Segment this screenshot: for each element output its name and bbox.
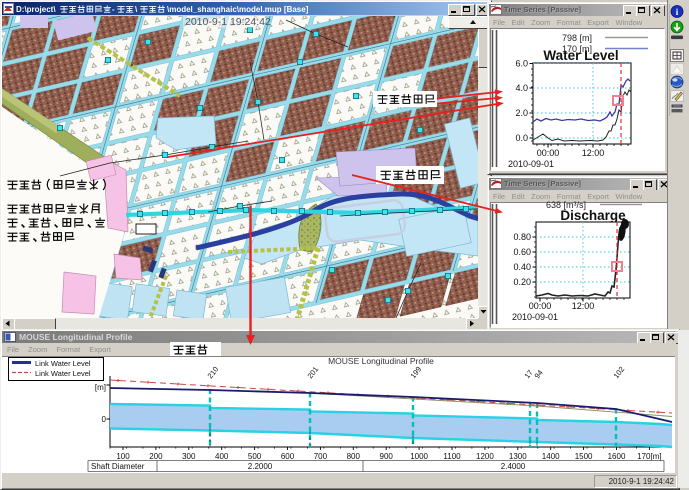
svg-text:0.60: 0.60 [513, 247, 531, 257]
svg-text:1000: 1000 [410, 452, 428, 461]
svg-text:100: 100 [116, 452, 130, 461]
svg-text:0.40: 0.40 [513, 262, 531, 272]
svg-text:Discharge: Discharge [560, 208, 626, 223]
svg-text:2010-9-1 19:24:42: 2010-9-1 19:24:42 [185, 16, 271, 28]
svg-text:600: 600 [281, 452, 295, 461]
svg-text:300: 300 [182, 452, 196, 461]
svg-text:-: - [112, 5, 115, 14]
svg-text:00:00: 00:00 [529, 301, 552, 311]
svg-text:\model_shanghaic\model.mup [Ba: \model_shanghaic\model.mup [Base] [167, 5, 309, 14]
svg-text:798 [m]: 798 [m] [562, 33, 592, 43]
svg-text:200: 200 [149, 452, 163, 461]
svg-text:00:00: 00:00 [537, 148, 560, 158]
svg-text:12:00: 12:00 [572, 301, 595, 311]
svg-text:800: 800 [347, 452, 361, 461]
svg-text:1400: 1400 [542, 452, 560, 461]
svg-text:0.20: 0.20 [513, 277, 531, 287]
svg-text:700: 700 [314, 452, 328, 461]
svg-text:1300: 1300 [509, 452, 527, 461]
svg-text:Water Level: Water Level [543, 48, 618, 63]
svg-text:1200: 1200 [476, 452, 494, 461]
svg-text:6.0: 6.0 [515, 59, 528, 69]
svg-text:2.4000: 2.4000 [501, 462, 526, 471]
svg-text:2010-09-01: 2010-09-01 [508, 159, 554, 169]
svg-text:400: 400 [215, 452, 229, 461]
svg-text:210: 210 [205, 365, 220, 380]
svg-text:[m]: [m] [95, 383, 106, 392]
svg-text:0: 0 [102, 415, 107, 424]
svg-text:0.0: 0.0 [515, 133, 528, 143]
svg-text:MOUSE Longitudinal Profile: MOUSE Longitudinal Profile [328, 356, 434, 366]
svg-text:D:\project\: D:\project\ [16, 5, 56, 14]
svg-text:Shaft Diameter: Shaft Diameter [91, 462, 145, 471]
svg-text:0.80: 0.80 [513, 232, 531, 242]
svg-text:1600: 1600 [608, 452, 626, 461]
svg-text:900: 900 [380, 452, 394, 461]
svg-text:1500: 1500 [575, 452, 593, 461]
svg-text:Link Water Level: Link Water Level [35, 359, 91, 368]
svg-text:2010-09-01: 2010-09-01 [512, 312, 558, 322]
svg-text:94: 94 [532, 368, 544, 380]
svg-text:170[m]: 170[m] [637, 452, 661, 461]
svg-text:199: 199 [408, 365, 423, 380]
svg-text:\: \ [135, 5, 138, 14]
svg-text:4.0: 4.0 [515, 83, 528, 93]
svg-text:201: 201 [305, 365, 320, 380]
svg-text:1100: 1100 [443, 452, 461, 461]
svg-text:12:00: 12:00 [582, 148, 605, 158]
svg-text:500: 500 [248, 452, 262, 461]
svg-text:Link Water Level: Link Water Level [35, 369, 91, 378]
svg-text:2.0: 2.0 [515, 108, 528, 118]
svg-text:2.2000: 2.2000 [248, 462, 273, 471]
svg-text:102: 102 [611, 365, 626, 380]
